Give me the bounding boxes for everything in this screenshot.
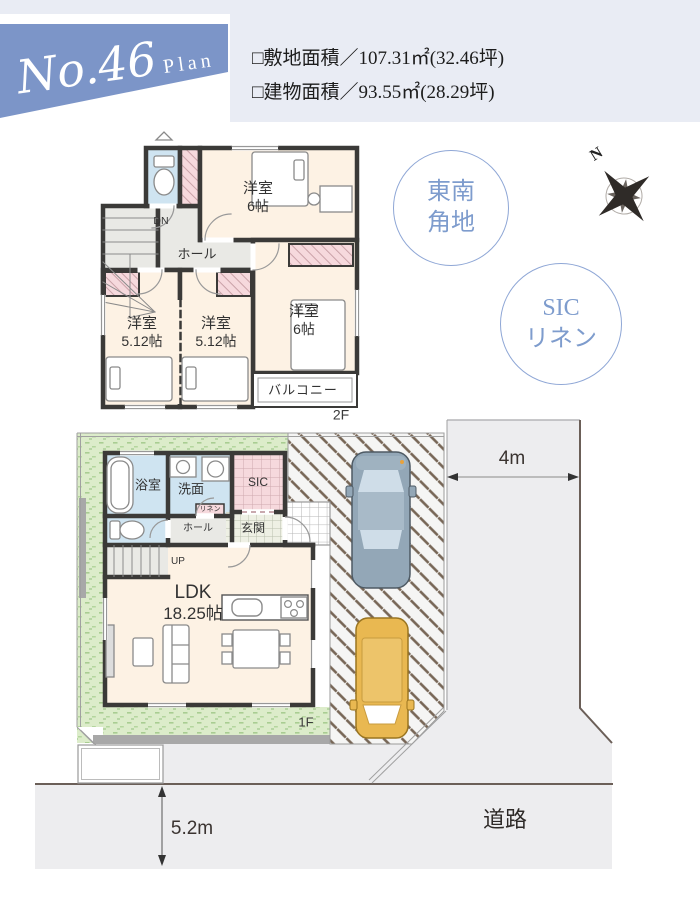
floor2-label: 2F — [333, 407, 349, 424]
badge-storage-line1: SIC — [525, 293, 597, 324]
closet-right-room — [289, 244, 353, 266]
stairs-up-label: UP — [171, 556, 185, 568]
room-label-bedroom-mid: 洋室5.12帖 — [195, 315, 236, 349]
ldk-label: LDK18.25帖 — [163, 582, 223, 624]
room-label-bedroom-top: 洋室6帖 — [243, 180, 273, 214]
badge-corner-line1: 東南 — [427, 177, 475, 208]
linen-label: リネン — [200, 506, 221, 514]
plan-word: Plan — [162, 49, 216, 78]
compass-rose — [579, 151, 669, 241]
garden-wall-south — [93, 735, 330, 744]
floor2-plan — [101, 132, 360, 410]
closet-mid-room — [217, 272, 251, 296]
area-summary: □敷地面積／107.31㎡(32.46坪) □建物面積／93.55㎡(28.29… — [252, 42, 504, 110]
washroom-label: 洗面 — [178, 481, 204, 496]
entrance-porch — [287, 502, 330, 545]
car-gray — [346, 452, 416, 588]
badge-storage-line2: リネン — [525, 324, 597, 355]
frontage-marker — [78, 745, 163, 783]
room-label-hall-2f: ホール — [177, 246, 216, 261]
shoe-closet-label: SIC — [248, 475, 268, 489]
frontage-label: 5.2m — [171, 818, 213, 840]
balcony-label: バルコニー — [268, 382, 338, 397]
car-yellow — [350, 618, 414, 738]
entrance-label: 玄関 — [241, 521, 265, 535]
site-plan — [35, 420, 613, 869]
bath-label: 浴室 — [135, 477, 161, 492]
floorplan-page: No.46Plan □敷地面積／107.31㎡(32.46坪) □建物面積／93… — [0, 0, 700, 900]
badge-corner-lot: 東南 角地 — [393, 150, 509, 266]
toilet-fixture-2f — [154, 132, 174, 195]
room-label-bedroom-right: 洋室6帖 — [289, 303, 319, 337]
badge-corner-line2: 角地 — [427, 208, 475, 239]
site-area-line: □敷地面積／107.31㎡(32.46坪) — [252, 42, 504, 76]
stairs-dn-label: DN — [153, 215, 168, 227]
hall-label-1f: ホール — [183, 523, 213, 535]
road-label: 道路 — [483, 807, 527, 833]
badge-storage: SIC リネン — [500, 263, 622, 385]
floorplan-graphics — [0, 0, 700, 900]
floor1-label: 1F — [298, 714, 313, 729]
road-width-label: 4m — [499, 448, 525, 470]
building-area-line: □建物面積／93.55㎡(28.29坪) — [252, 76, 504, 110]
room-label-bedroom-left: 洋室5.12帖 — [121, 315, 162, 349]
